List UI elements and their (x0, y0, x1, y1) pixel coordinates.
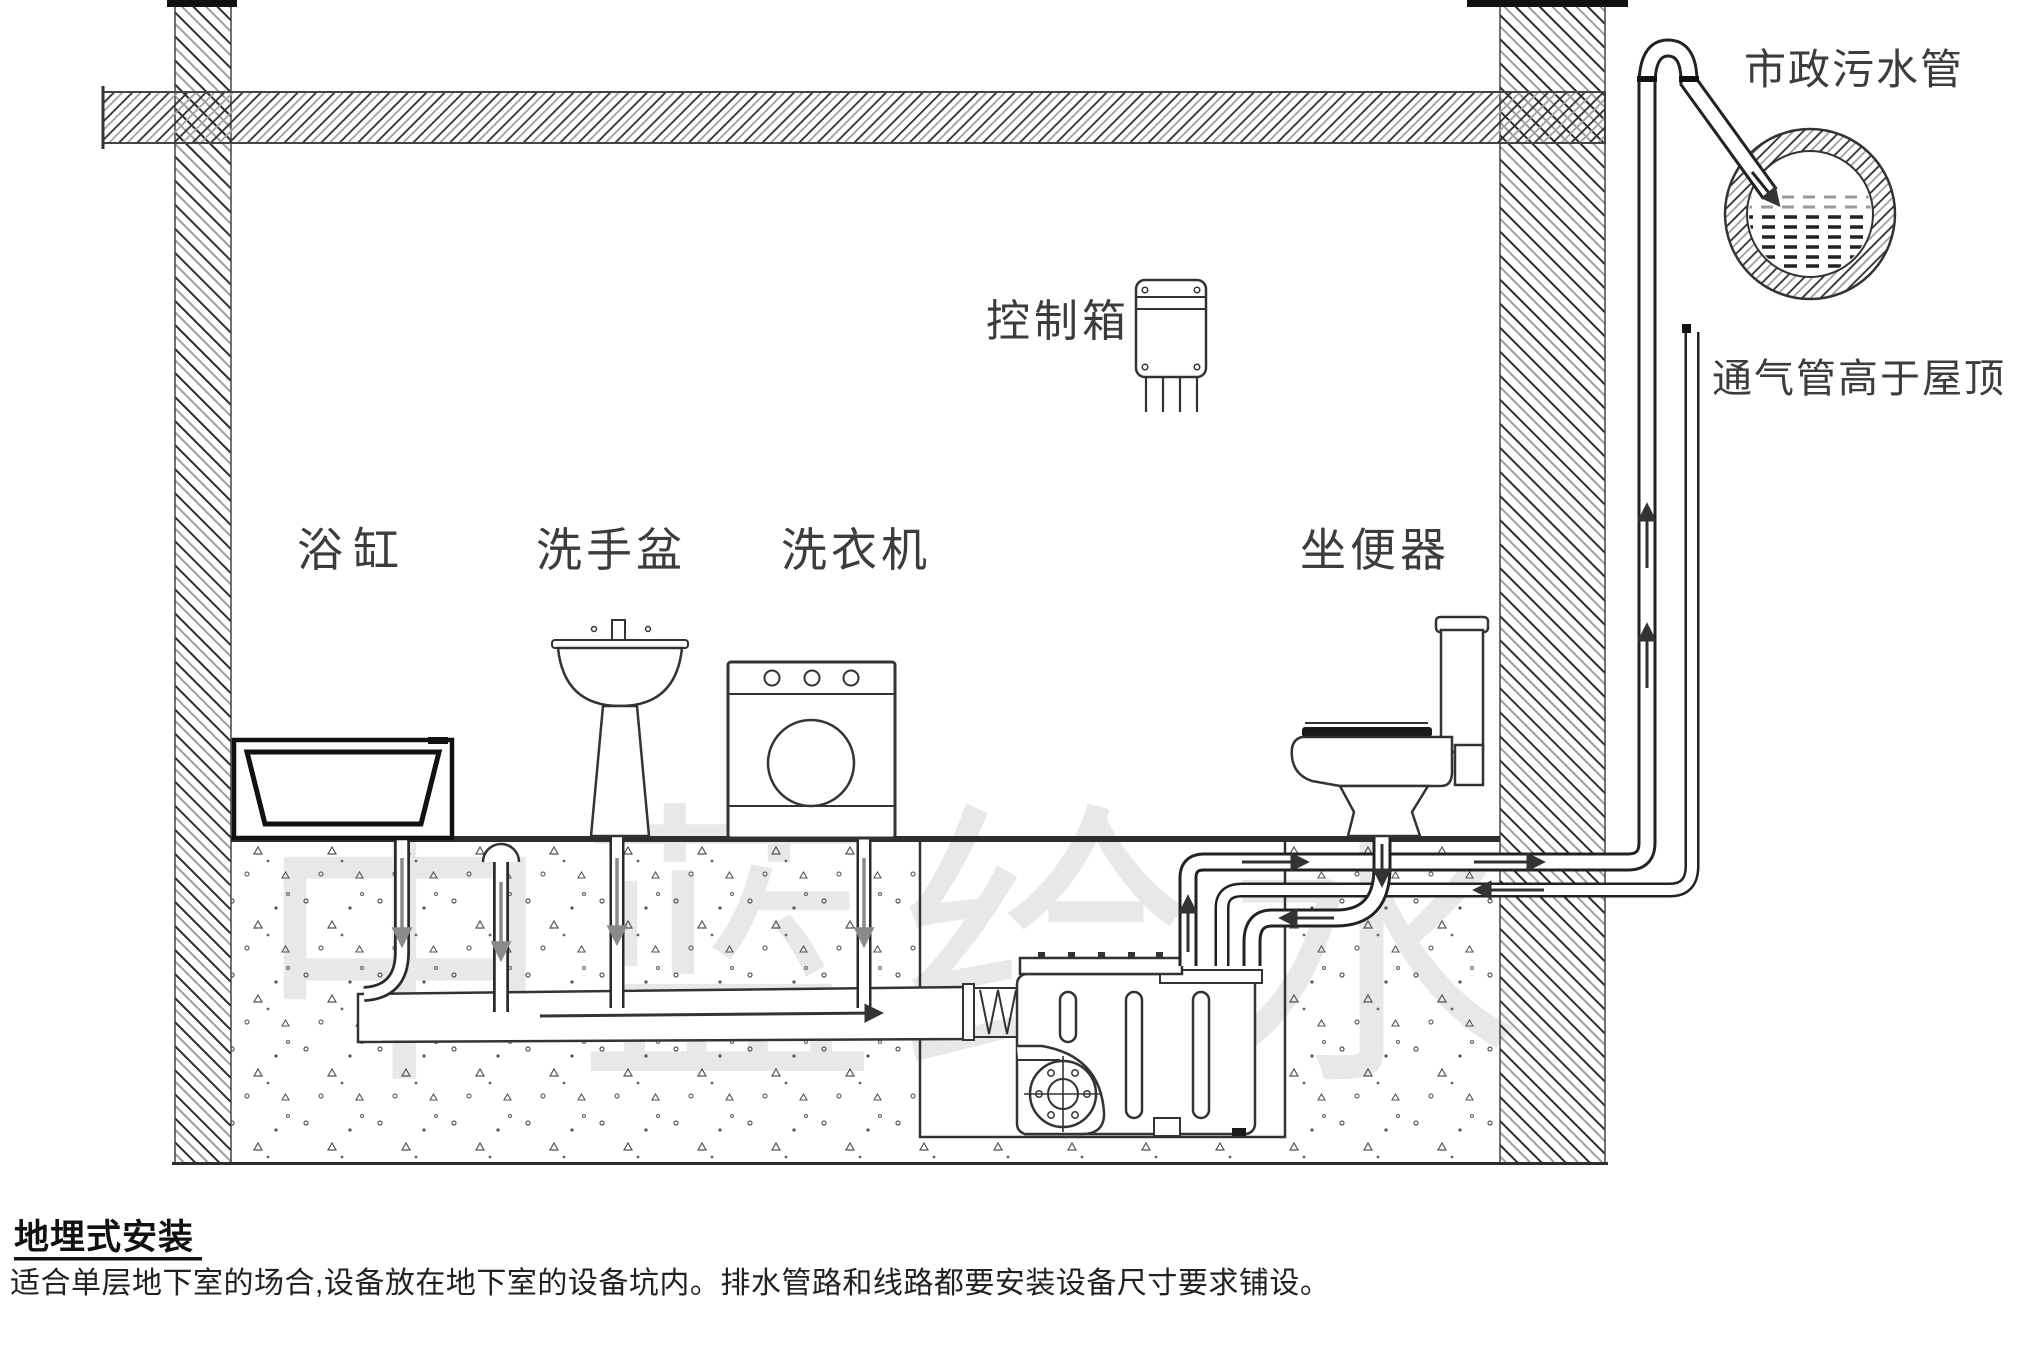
right-wall (1500, 0, 1605, 1164)
washer-knob-2 (805, 671, 820, 686)
buried-installation-diagram: 中蓝给水 (0, 0, 2022, 1353)
pump-foot-right (1232, 1128, 1246, 1136)
installation-diagram-page: 中蓝给水 (0, 0, 2022, 1353)
pump-foot-center (1154, 1118, 1180, 1136)
toilet-tank (1441, 630, 1483, 752)
label-control-box: 控制箱 (986, 297, 1130, 346)
left-wall (175, 0, 231, 1164)
label-washbasin: 洗手盆 (536, 525, 686, 576)
toilet-flush-conduit (1455, 745, 1483, 785)
label-bathtub: 浴缸 (297, 525, 409, 576)
bathtub (234, 737, 452, 838)
label-washing-machine: 洗衣机 (781, 525, 931, 576)
pump-slot-3 (1193, 992, 1209, 1118)
left-wall-top-cap (167, 0, 237, 7)
toilet-seat (1302, 727, 1432, 737)
pump-slot-2 (1126, 992, 1142, 1118)
toilet-bowl (1292, 737, 1452, 786)
right-wall-top-cap (1467, 0, 1628, 7)
pump-lid-rail (1020, 958, 1182, 974)
caption-title: 地埋式安装 (14, 1218, 194, 1257)
sewage-pump (1017, 952, 1262, 1136)
ceiling-slab (103, 92, 1605, 143)
washer-knob-1 (765, 671, 780, 686)
bathtub-rim-tick (428, 737, 448, 744)
caption-title-underline (14, 1257, 202, 1261)
label-vent-pipe: 通气管高于屋顶 (1712, 356, 2006, 401)
vent-open-end-cap (1682, 324, 1691, 333)
pipe-flange-tick-right (1679, 76, 1699, 82)
washer-door (768, 720, 854, 806)
pump-slot-1 (1060, 992, 1076, 1042)
washing-machine (728, 662, 895, 838)
label-toilet: 坐便器 (1300, 525, 1450, 576)
label-municipal-sewer: 市政污水管 (1744, 47, 1964, 94)
washer-knob-3 (844, 671, 859, 686)
washbasin-faucet (612, 620, 625, 642)
pipe-flange-tick-left (1637, 76, 1657, 82)
caption-body: 适合单层地下室的场合,设备放在地下室的设备坑内。排水管路和线路都要安装设备尺寸要… (10, 1267, 1330, 1300)
building-bottom-line (172, 1162, 1608, 1165)
